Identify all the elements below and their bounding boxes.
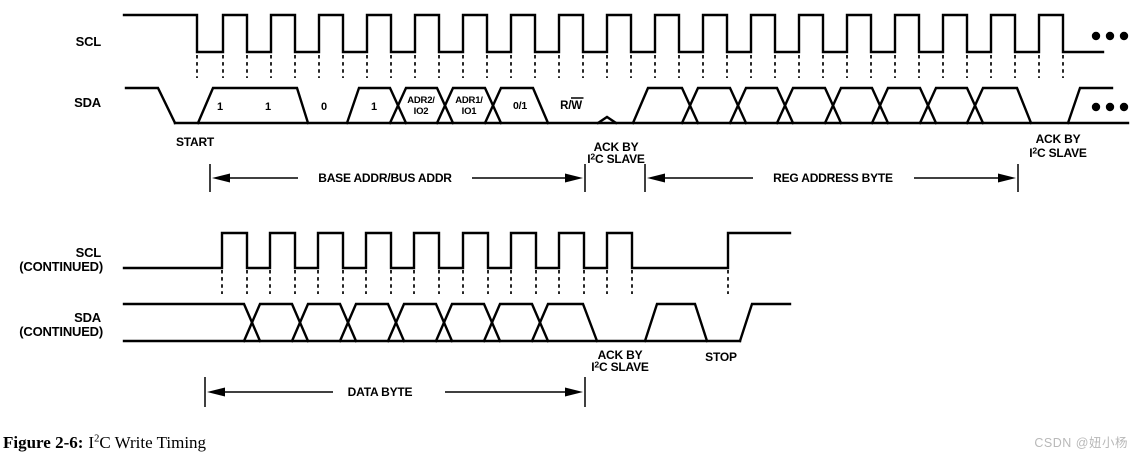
- scl-ellipsis-dot: [1106, 32, 1114, 40]
- figure-title: I2C Write Timing: [88, 433, 206, 452]
- base-addr-arrow-right-head: [565, 174, 583, 183]
- scl-cont-label-line2: (CONTINUED): [19, 259, 103, 274]
- data-byte-arrow-right-head: [565, 388, 583, 397]
- ack3-label-line2: I2C SLAVE: [591, 360, 649, 375]
- bit-label-1a: 1: [217, 101, 223, 113]
- scl-ellipsis-dot: [1120, 32, 1128, 40]
- reg-addr-arrow-label: REG ADDRESS BYTE: [773, 171, 893, 185]
- sda-continued-waveform: [124, 304, 790, 341]
- scl-waveform: [124, 15, 1128, 78]
- ack2-label-line2: I2C SLAVE: [1029, 146, 1087, 161]
- rw-label: R/W: [560, 100, 582, 112]
- sda-ellipsis-dot: [1120, 103, 1128, 111]
- bit-label-io2: IO2: [414, 106, 429, 117]
- ack1-label-line2: I2C SLAVE: [587, 152, 645, 167]
- scl-cont-label-line1: SCL: [76, 245, 102, 260]
- sda-signal-label: SDA: [74, 95, 102, 110]
- data-byte-arrow-left-head: [207, 388, 225, 397]
- sda-cont-label-line1: SDA: [74, 310, 102, 325]
- scl-continued-waveform: [124, 233, 790, 294]
- bit-label-io1: IO1: [462, 106, 478, 117]
- reg-addr-arrow-left-head: [647, 174, 665, 183]
- scl-ellipsis-dot: [1092, 32, 1100, 40]
- stop-label: STOP: [705, 350, 737, 364]
- timing-diagram-svg: SCLSDA1101ADR2/IO2ADR1/IO10/1R/WSTARTACK…: [0, 0, 1143, 460]
- reg-addr-arrow-right-head: [998, 174, 1016, 183]
- sda-cont-label-line2: (CONTINUED): [19, 324, 103, 339]
- bit-label-01: 0/1: [513, 100, 527, 112]
- base-addr-arrow-label: BASE ADDR/BUS ADDR: [318, 171, 452, 185]
- bit-label-0: 0: [321, 101, 327, 113]
- bit-label-1b: 1: [265, 101, 271, 113]
- i2c-write-timing-figure: SCLSDA1101ADR2/IO2ADR1/IO10/1R/WSTARTACK…: [0, 0, 1143, 460]
- bit-label-1c: 1: [371, 101, 377, 113]
- ack2-label-line1: ACK BY: [1036, 132, 1081, 146]
- figure-number: Figure 2-6:: [3, 433, 83, 452]
- bit-label-adr2: ADR2/: [407, 95, 435, 106]
- figure-caption: Figure 2-6:I2C Write Timing: [3, 433, 206, 453]
- start-label: START: [176, 135, 215, 149]
- sda-ellipsis-dot: [1106, 103, 1114, 111]
- bit-label-adr1: ADR1/: [455, 95, 483, 106]
- watermark-text: CSDN @妞小杨: [1034, 432, 1128, 451]
- scl-signal-label: SCL: [76, 34, 102, 49]
- base-addr-arrow-left-head: [212, 174, 230, 183]
- sda-ellipsis-dot: [1092, 103, 1100, 111]
- sda-waveform: [126, 88, 1128, 123]
- data-byte-arrow-label: DATA BYTE: [348, 385, 413, 399]
